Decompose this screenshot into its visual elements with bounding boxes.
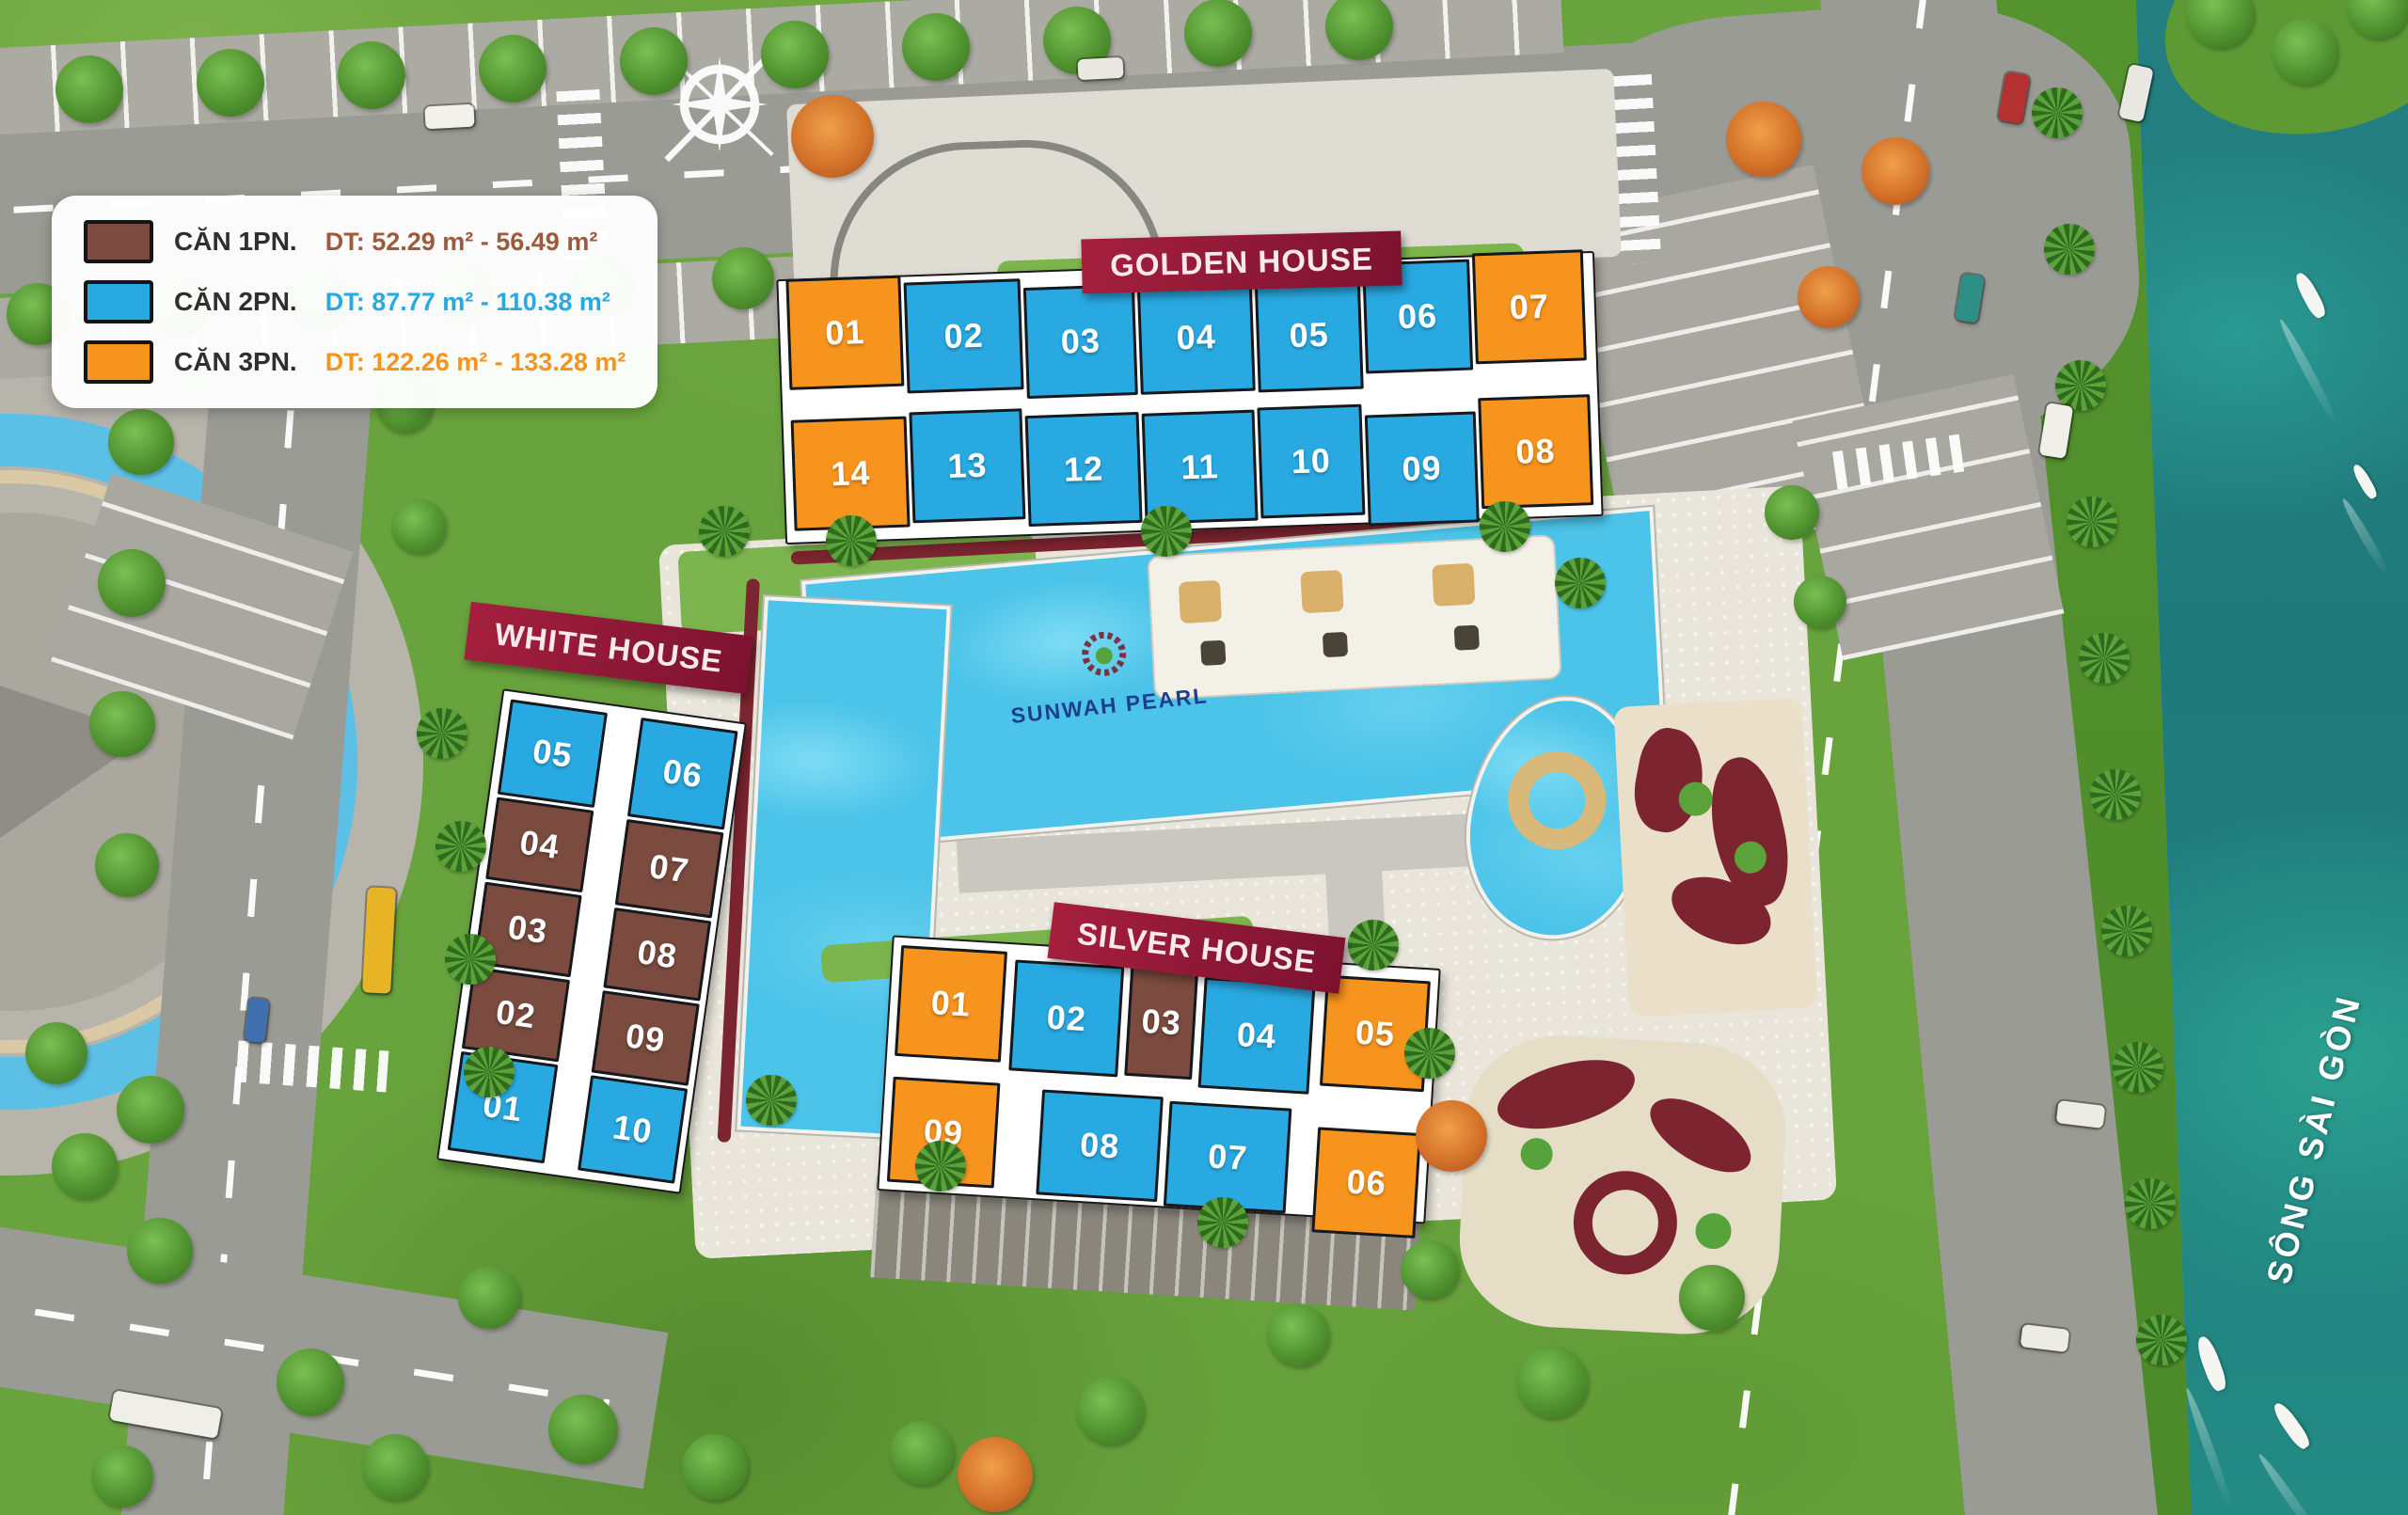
unit-10[interactable]: 10	[1257, 404, 1366, 519]
tree-icon	[682, 1434, 748, 1500]
unit-02[interactable]: 02	[1008, 959, 1125, 1077]
unit-03[interactable]: 03	[1023, 284, 1138, 399]
legend-row-2pn: CĂN 2PN.DT: 87.77 m² - 110.38 m²	[84, 280, 626, 324]
unit-03[interactable]: 03	[1125, 965, 1198, 1080]
sunwah-pearl-logo-icon	[1068, 623, 1141, 693]
unit-02[interactable]: 02	[462, 967, 570, 1063]
orange-tree-icon	[958, 1437, 1033, 1512]
unit-08[interactable]: 08	[603, 907, 711, 1002]
tree-icon	[391, 499, 446, 554]
silver-house-building: 010203040509080706	[877, 935, 1441, 1223]
unit-11[interactable]: 11	[1142, 410, 1258, 525]
unit-09[interactable]: 09	[1365, 411, 1479, 526]
legend-row-1pn: CĂN 1PN.DT: 52.29 m² - 56.49 m²	[84, 220, 626, 263]
unit-06[interactable]: 06	[627, 718, 738, 829]
golden-house-building: 0102030405060714131211100908	[776, 251, 1603, 544]
legend-swatch-1pn	[84, 220, 153, 263]
unit-08[interactable]: 08	[1036, 1089, 1164, 1202]
unit-09[interactable]: 09	[592, 990, 700, 1086]
unit-01[interactable]: 01	[895, 945, 1007, 1063]
unit-09[interactable]: 09	[887, 1077, 1001, 1189]
legend-detail: DT: 122.26 m² - 133.28 m²	[325, 348, 626, 377]
unit-10[interactable]: 10	[578, 1075, 688, 1183]
bottom-road	[0, 1215, 668, 1489]
compass-rose: N	[657, 41, 783, 167]
legend-label: CĂN 1PN.	[174, 227, 297, 257]
unit-14[interactable]: 14	[791, 417, 911, 531]
tree-icon	[1516, 1347, 1588, 1418]
legend-swatch-3pn	[84, 340, 153, 384]
unit-01[interactable]: 01	[448, 1051, 559, 1163]
cabana-area	[1149, 536, 1560, 698]
garden-east	[1613, 698, 1817, 1018]
unit-04[interactable]: 04	[485, 797, 594, 893]
unit-07[interactable]: 07	[1164, 1101, 1291, 1214]
golden-house-banner: GOLDEN HOUSE	[1081, 231, 1402, 294]
tree-icon	[1076, 1377, 1144, 1444]
unit-type-legend: CĂN 1PN.DT: 52.29 m² - 56.49 m²CĂN 2PN.D…	[52, 196, 657, 408]
unit-04[interactable]: 04	[1197, 977, 1316, 1095]
tree-icon	[1267, 1304, 1329, 1366]
unit-02[interactable]: 02	[904, 278, 1024, 393]
unit-01[interactable]: 01	[785, 276, 904, 390]
legend-swatch-2pn	[84, 280, 153, 324]
palm-tree-icon	[417, 708, 467, 759]
unit-06[interactable]: 06	[1311, 1127, 1421, 1239]
unit-07[interactable]: 07	[615, 819, 724, 919]
legend-label: CĂN 3PN.	[174, 347, 297, 377]
unit-07[interactable]: 07	[1472, 249, 1587, 364]
unit-08[interactable]: 08	[1478, 394, 1593, 509]
legend-detail: DT: 52.29 m² - 56.49 m²	[325, 228, 598, 257]
unit-04[interactable]: 04	[1137, 280, 1256, 395]
legend-label: CĂN 2PN.	[174, 287, 297, 317]
unit-13[interactable]: 13	[910, 408, 1025, 523]
unit-05[interactable]: 05	[498, 700, 608, 808]
unit-05[interactable]: 05	[1255, 278, 1364, 393]
site-plan-canvas: SUNWAH PEARL	[0, 0, 2408, 1515]
garden-southeast	[1455, 1031, 1790, 1338]
unit-12[interactable]: 12	[1024, 412, 1142, 527]
tree-icon	[890, 1421, 954, 1485]
unit-03[interactable]: 03	[473, 882, 581, 978]
legend-detail: DT: 87.77 m² - 110.38 m²	[325, 288, 610, 317]
legend-row-3pn: CĂN 3PN.DT: 122.26 m² - 133.28 m²	[84, 340, 626, 384]
